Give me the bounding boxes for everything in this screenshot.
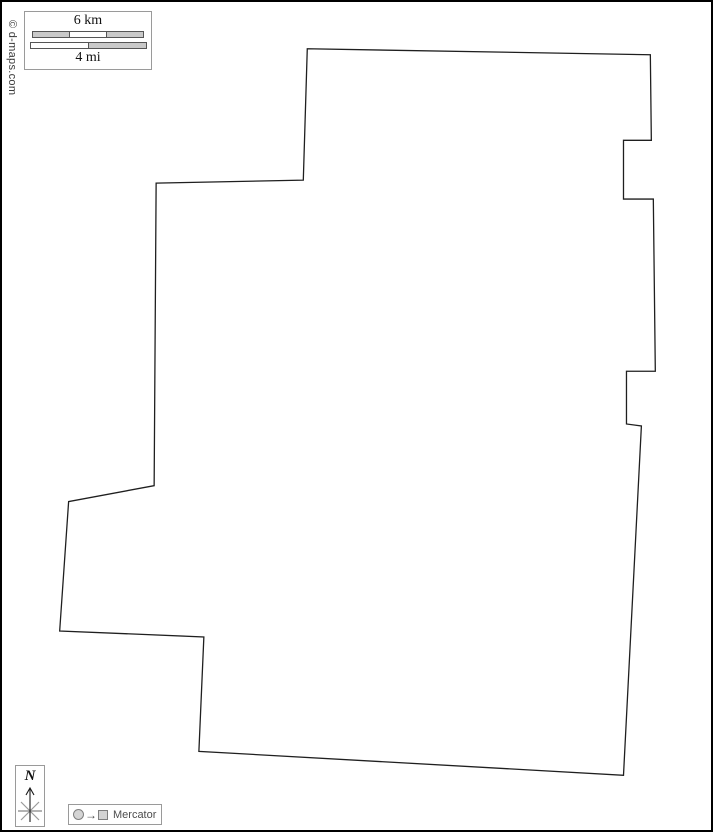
- compass-rose-icon: [16, 785, 44, 825]
- scale-mi-label: 4 mi: [75, 49, 100, 66]
- scale-segment: [106, 31, 144, 38]
- projection-label: Mercator: [113, 809, 156, 821]
- scale-km-label: 6 km: [74, 12, 102, 29]
- map-canvas: [2, 2, 711, 830]
- compass-box: N: [15, 765, 45, 827]
- scale-bar-km: [32, 31, 144, 38]
- projection-box: → Mercator: [68, 804, 162, 825]
- north-label: N: [16, 767, 44, 785]
- scale-segment: [30, 42, 89, 49]
- scale-segment: [88, 42, 147, 49]
- sphere-icon: [73, 809, 84, 820]
- scale-segment: [69, 31, 107, 38]
- map-page: © d-maps.com 6 km 4 mi N → Mercator: [0, 0, 713, 832]
- arrow-right-icon: →: [85, 809, 97, 821]
- plane-icon: [98, 810, 108, 820]
- scale-segment: [32, 31, 70, 38]
- copyright-text: © d-maps.com: [6, 20, 18, 95]
- scale-box: 6 km 4 mi: [24, 11, 152, 70]
- scale-bar-mi: [30, 42, 147, 49]
- map-outline: [60, 49, 656, 775]
